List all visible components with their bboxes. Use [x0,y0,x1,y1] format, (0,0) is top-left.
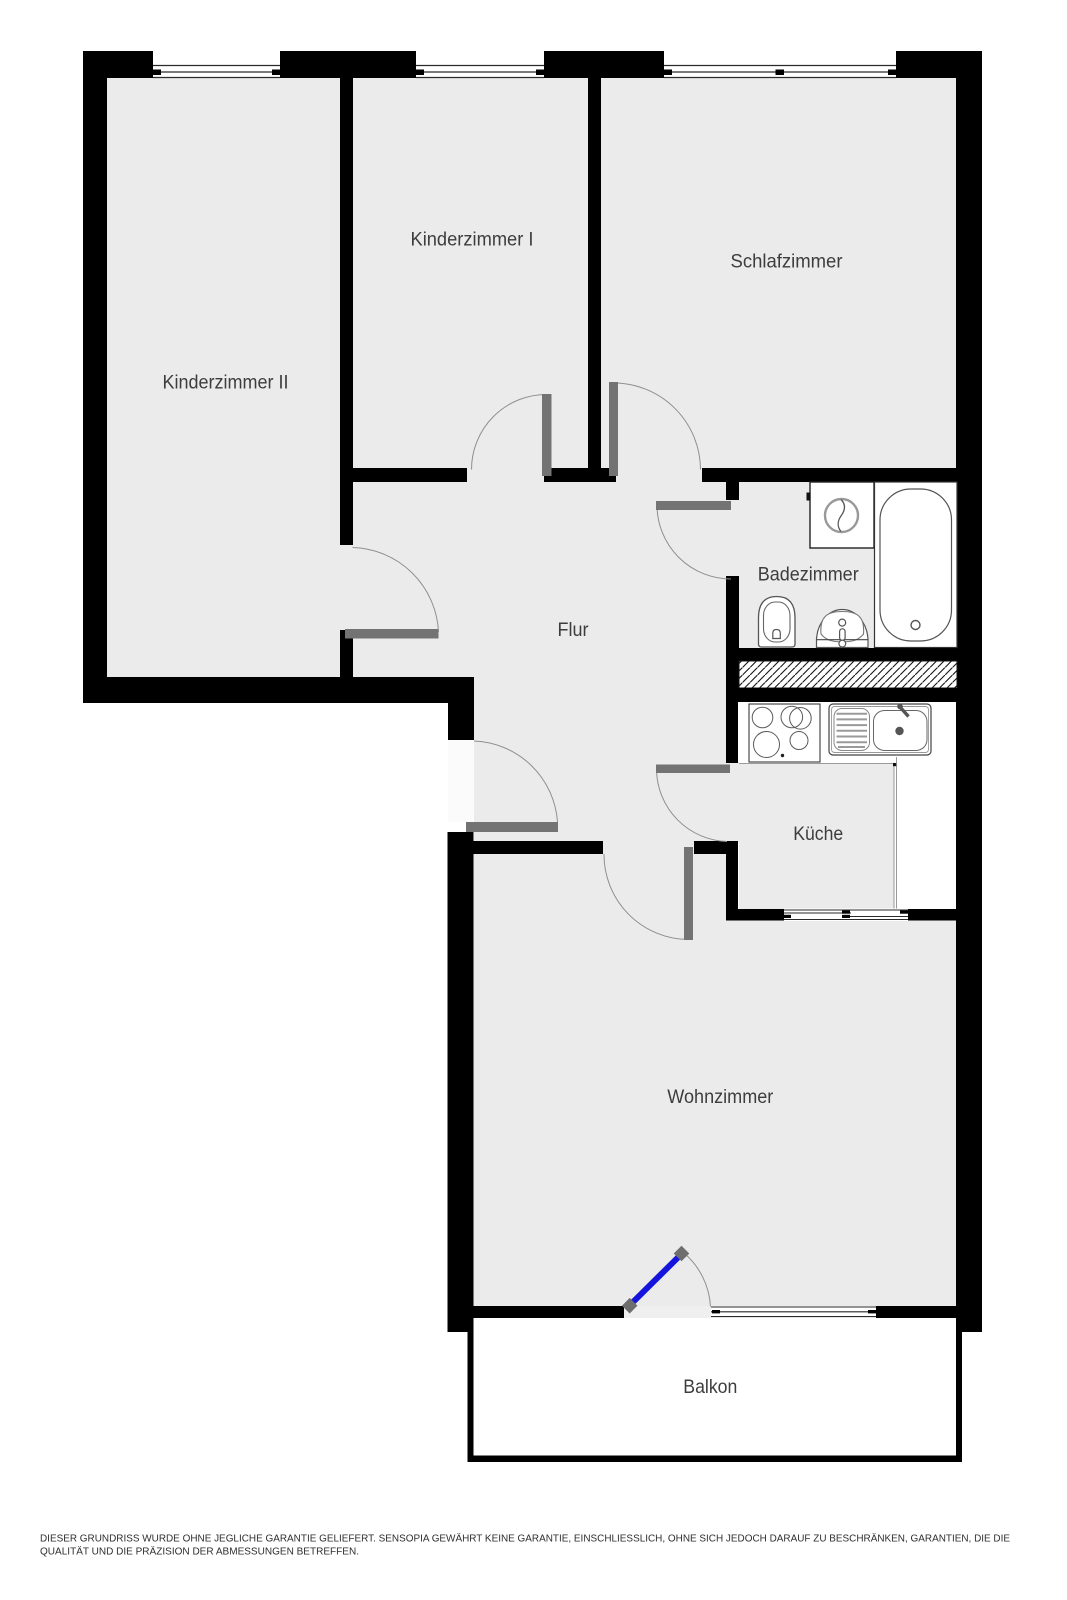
svg-text:Kinderzimmer I: Kinderzimmer I [411,229,534,251]
svg-text:Schlafzimmer: Schlafzimmer [731,251,843,273]
svg-text:Küche: Küche [793,823,843,845]
svg-text:DIESER GRUNDRISS WURDE OHNE JE: DIESER GRUNDRISS WURDE OHNE JEGLICHE GAR… [40,1533,1010,1545]
svg-text:Kinderzimmer II: Kinderzimmer II [163,372,289,394]
svg-text:Balkon: Balkon [683,1376,737,1398]
svg-text:Badezimmer: Badezimmer [758,564,859,586]
svg-text:QUALITÄT UND DIE PRÄZISION DER: QUALITÄT UND DIE PRÄZISION DER ABMESSUNG… [40,1546,359,1558]
svg-text:Wohnzimmer: Wohnzimmer [667,1086,773,1108]
svg-text:Flur: Flur [558,619,589,641]
